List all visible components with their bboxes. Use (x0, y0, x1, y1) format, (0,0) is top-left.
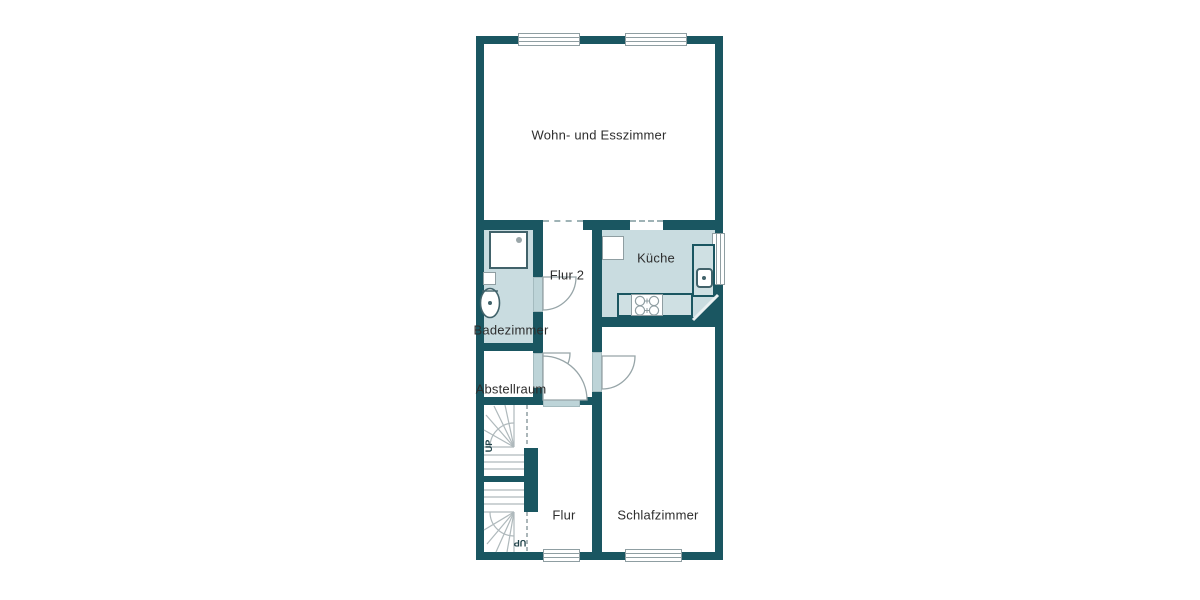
wall-stair-landing (484, 476, 524, 482)
wall-bath-south (476, 343, 543, 351)
wall-outer-bottom (476, 552, 723, 560)
wall-outer-left (476, 36, 484, 560)
window-living-top-left (518, 33, 580, 46)
room-label-hallway: Flur (552, 508, 575, 523)
wall-hall2-south-stub (580, 397, 592, 405)
window-bedroom-bottom (625, 549, 682, 562)
room-label-kitchen: Küche (637, 251, 675, 266)
room-label-hallway2: Flur 2 (550, 268, 584, 283)
room-label-bedroom: Schlafzimmer (617, 508, 698, 523)
door-swing-storage (543, 353, 570, 380)
room-label-living: Wohn- und Esszimmer (531, 128, 666, 143)
wall-storage-south (476, 397, 543, 405)
room-label-bathroom: Badezimmer (474, 323, 549, 338)
door-bathroom (533, 277, 543, 312)
door-bedroom (592, 352, 602, 392)
stairs-upper-flight (484, 405, 524, 469)
stairs-up-label-lower: UP (514, 538, 527, 548)
shower (489, 231, 528, 269)
passage-living-to-kitchen (630, 220, 663, 230)
window-hallway-bottom (543, 549, 580, 562)
door-swing-bedroom (602, 356, 635, 389)
sink-drain-icon (702, 276, 706, 280)
shower-drain-icon (516, 237, 522, 243)
passage-living-to-hallway2 (543, 220, 583, 230)
stairs-up-label-upper: UP (484, 440, 494, 453)
stove (631, 294, 663, 316)
wall-kitchen-south (602, 317, 723, 327)
room-label-storage: Abstellraum (476, 382, 547, 397)
wall-stair-side (524, 448, 538, 512)
door-swing-hallway (543, 356, 587, 400)
floor-plan: Wohn- und Esszimmer Küche Flur 2 Badezim… (0, 0, 1200, 600)
wall-outer-right (715, 36, 723, 560)
door-hallway (543, 395, 580, 407)
refrigerator (602, 236, 624, 260)
bath-cabinet (483, 272, 496, 285)
window-living-top-right (625, 33, 687, 46)
wall-living-south (476, 220, 723, 230)
